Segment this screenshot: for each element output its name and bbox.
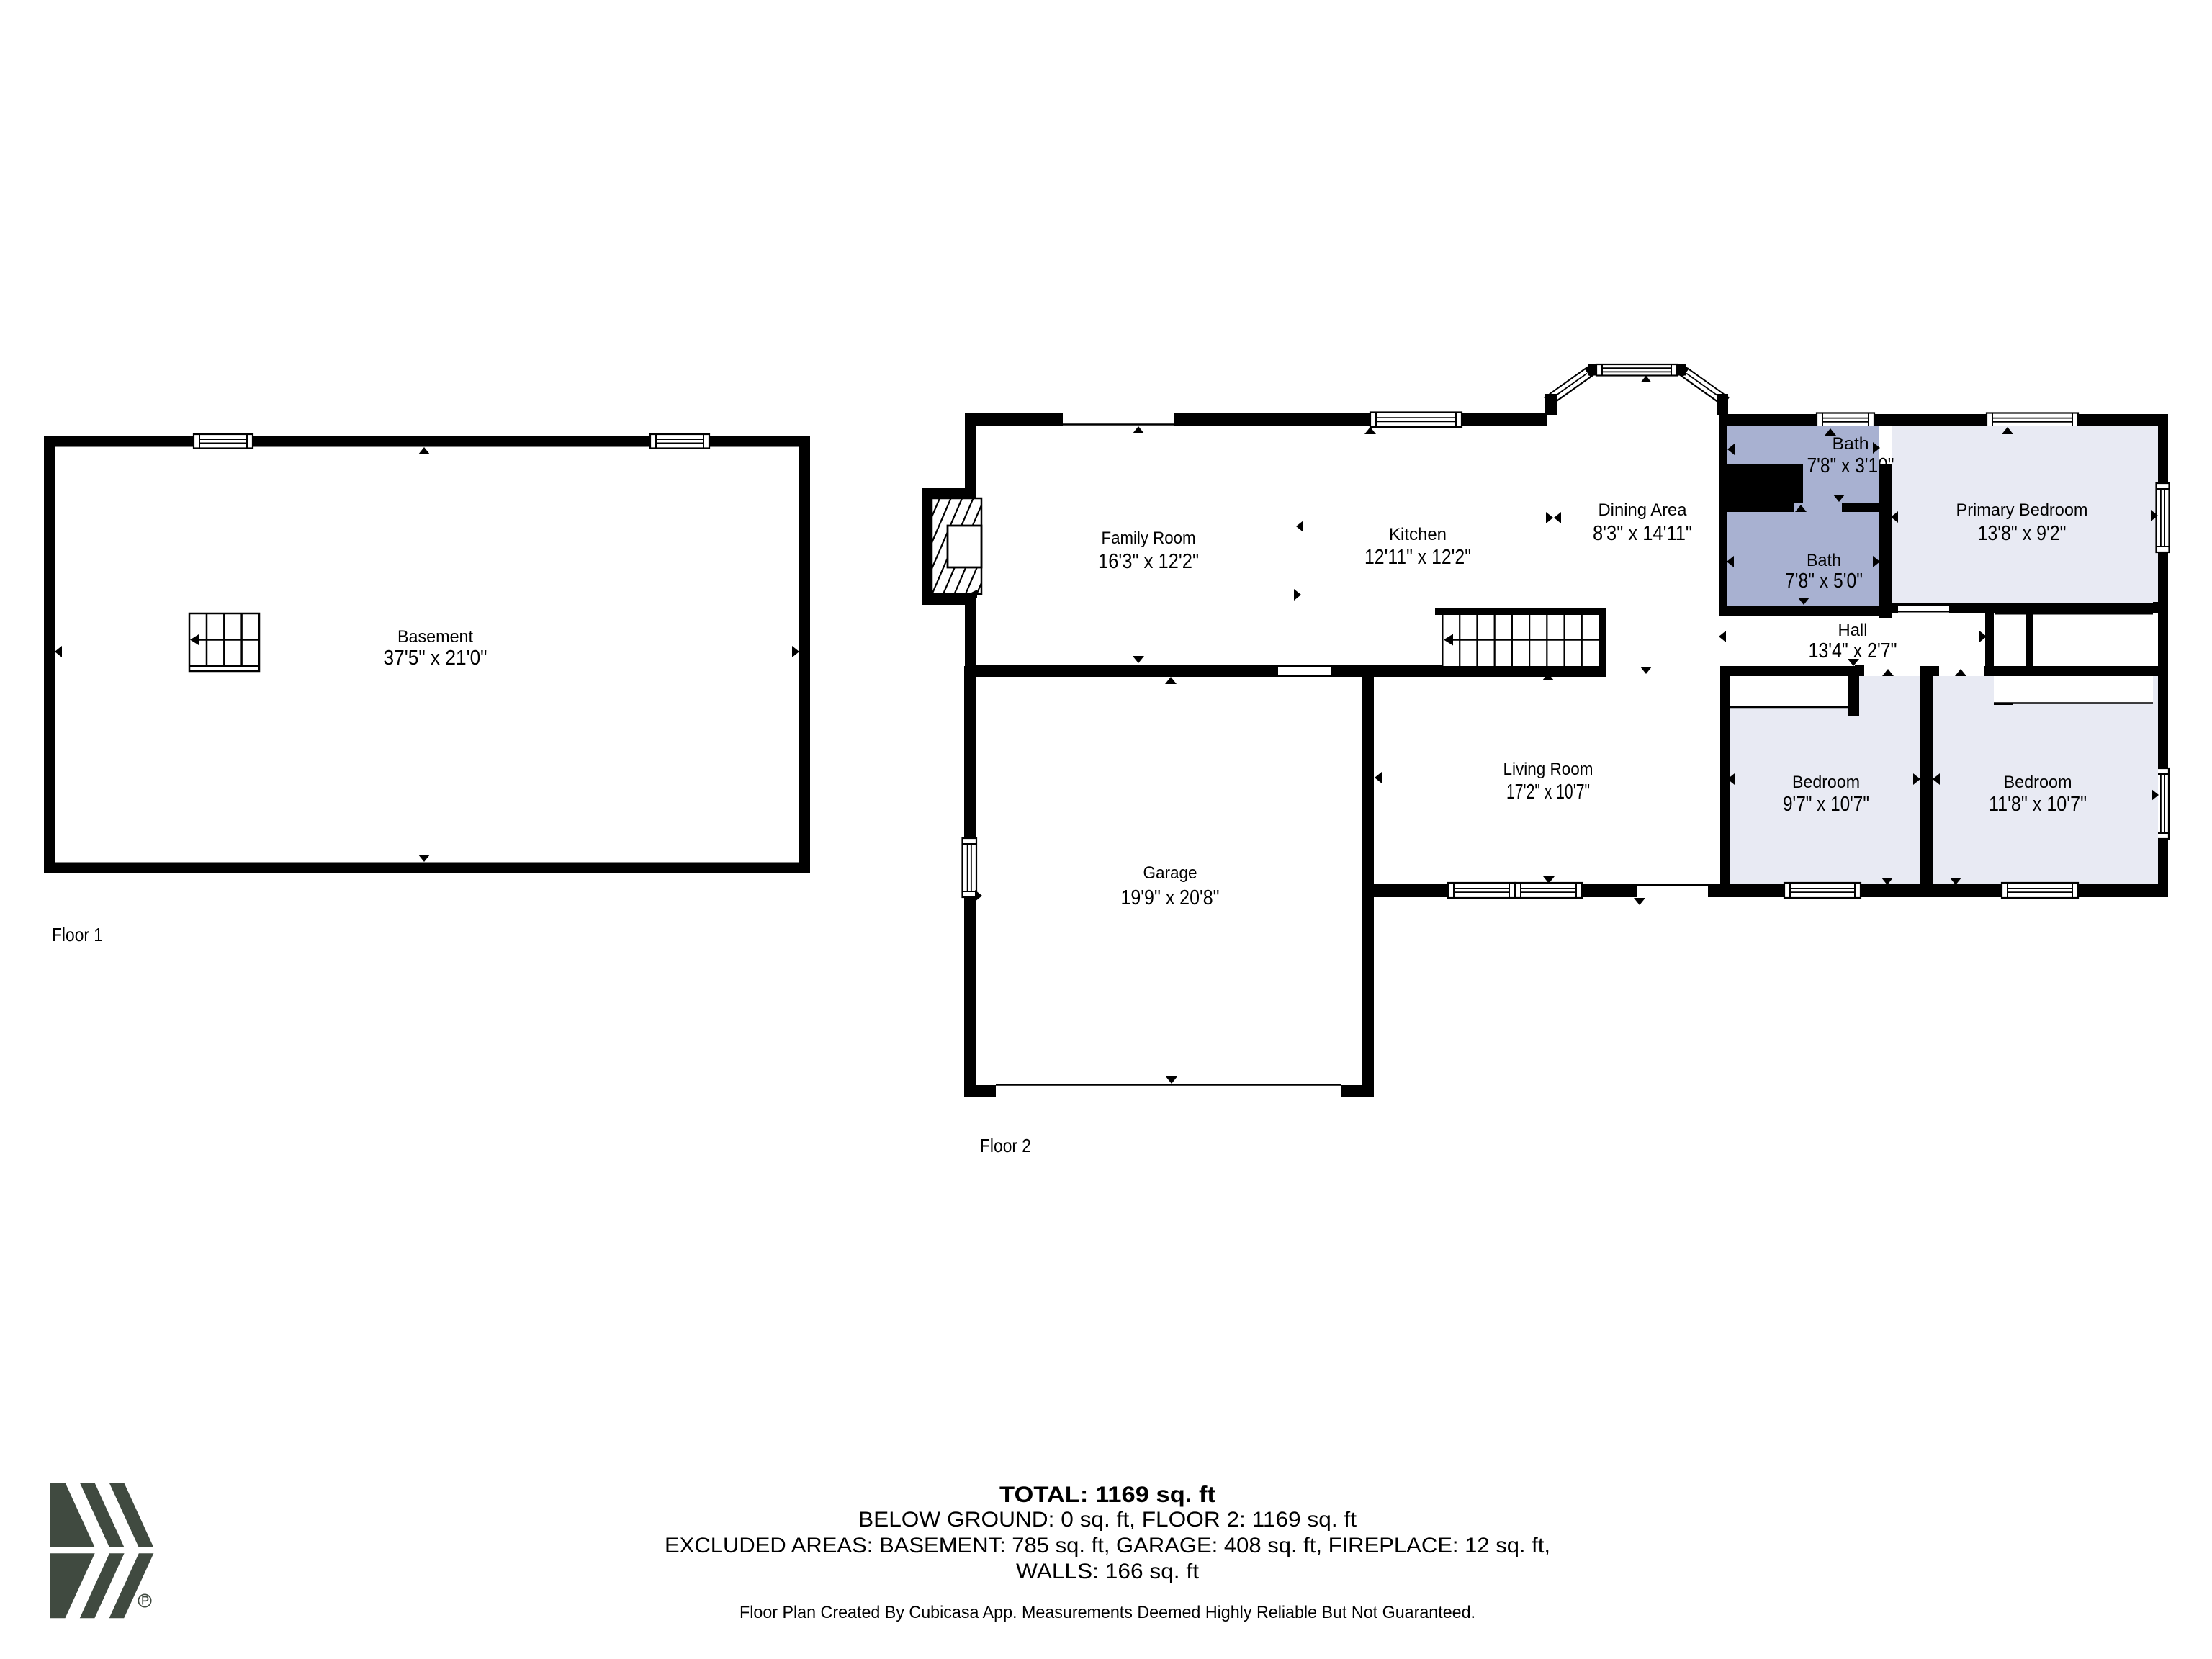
- svg-text:16'3" x 12'2": 16'3" x 12'2": [1098, 550, 1199, 573]
- svg-text:Hall: Hall: [1838, 621, 1868, 640]
- svg-text:9'7" x 10'7": 9'7" x 10'7": [1783, 793, 1869, 816]
- svg-text:WALLS: 166 sq. ft: WALLS: 166 sq. ft: [1016, 1560, 1200, 1583]
- svg-text:EXCLUDED AREAS: BASEMENT: 785: EXCLUDED AREAS: BASEMENT: 785 sq. ft, GA…: [665, 1534, 1550, 1557]
- svg-text:Family Room: Family Room: [1102, 529, 1196, 548]
- svg-text:Bath: Bath: [1807, 551, 1841, 570]
- svg-text:12'11" x 12'2": 12'11" x 12'2": [1364, 546, 1471, 569]
- svg-text:Bedroom: Bedroom: [2004, 773, 2072, 792]
- svg-text:Floor Plan Created By Cubicasa: Floor Plan Created By Cubicasa App. Meas…: [739, 1603, 1475, 1622]
- svg-text:7'8" x 5'0": 7'8" x 5'0": [1785, 570, 1863, 593]
- svg-text:Kitchen: Kitchen: [1389, 525, 1447, 544]
- svg-text:BELOW GROUND: 0 sq. ft, FLOOR: BELOW GROUND: 0 sq. ft, FLOOR 2: 1169 sq…: [858, 1508, 1357, 1532]
- svg-text:Floor 2: Floor 2: [980, 1135, 1031, 1156]
- svg-text:13'8" x 9'2": 13'8" x 9'2": [1978, 522, 2067, 545]
- svg-text:Garage: Garage: [1143, 863, 1197, 883]
- svg-text:11'8" x 10'7": 11'8" x 10'7": [1989, 793, 2087, 816]
- svg-text:8'3" x 14'11": 8'3" x 14'11": [1593, 522, 1692, 545]
- svg-text:37'5" x 21'0": 37'5" x 21'0": [384, 647, 487, 670]
- svg-text:Bedroom: Bedroom: [1792, 773, 1860, 792]
- svg-text:Dining Area: Dining Area: [1599, 500, 1688, 520]
- svg-text:TOTAL: 1169 sq. ft: TOTAL: 1169 sq. ft: [999, 1481, 1216, 1507]
- svg-text:Bath: Bath: [1833, 434, 1869, 454]
- svg-text:Basement: Basement: [397, 627, 473, 647]
- svg-text:13'4" x 2'7": 13'4" x 2'7": [1809, 639, 1897, 662]
- svg-text:Floor 1: Floor 1: [52, 924, 103, 945]
- svg-text:17'2" x 10'7": 17'2" x 10'7": [1506, 781, 1590, 804]
- svg-text:7'8" x 3'10": 7'8" x 3'10": [1807, 454, 1894, 477]
- svg-text:Primary Bedroom: Primary Bedroom: [1956, 500, 2088, 520]
- svg-text:Living Room: Living Room: [1503, 760, 1593, 779]
- svg-text:19'9" x 20'8": 19'9" x 20'8": [1121, 886, 1220, 909]
